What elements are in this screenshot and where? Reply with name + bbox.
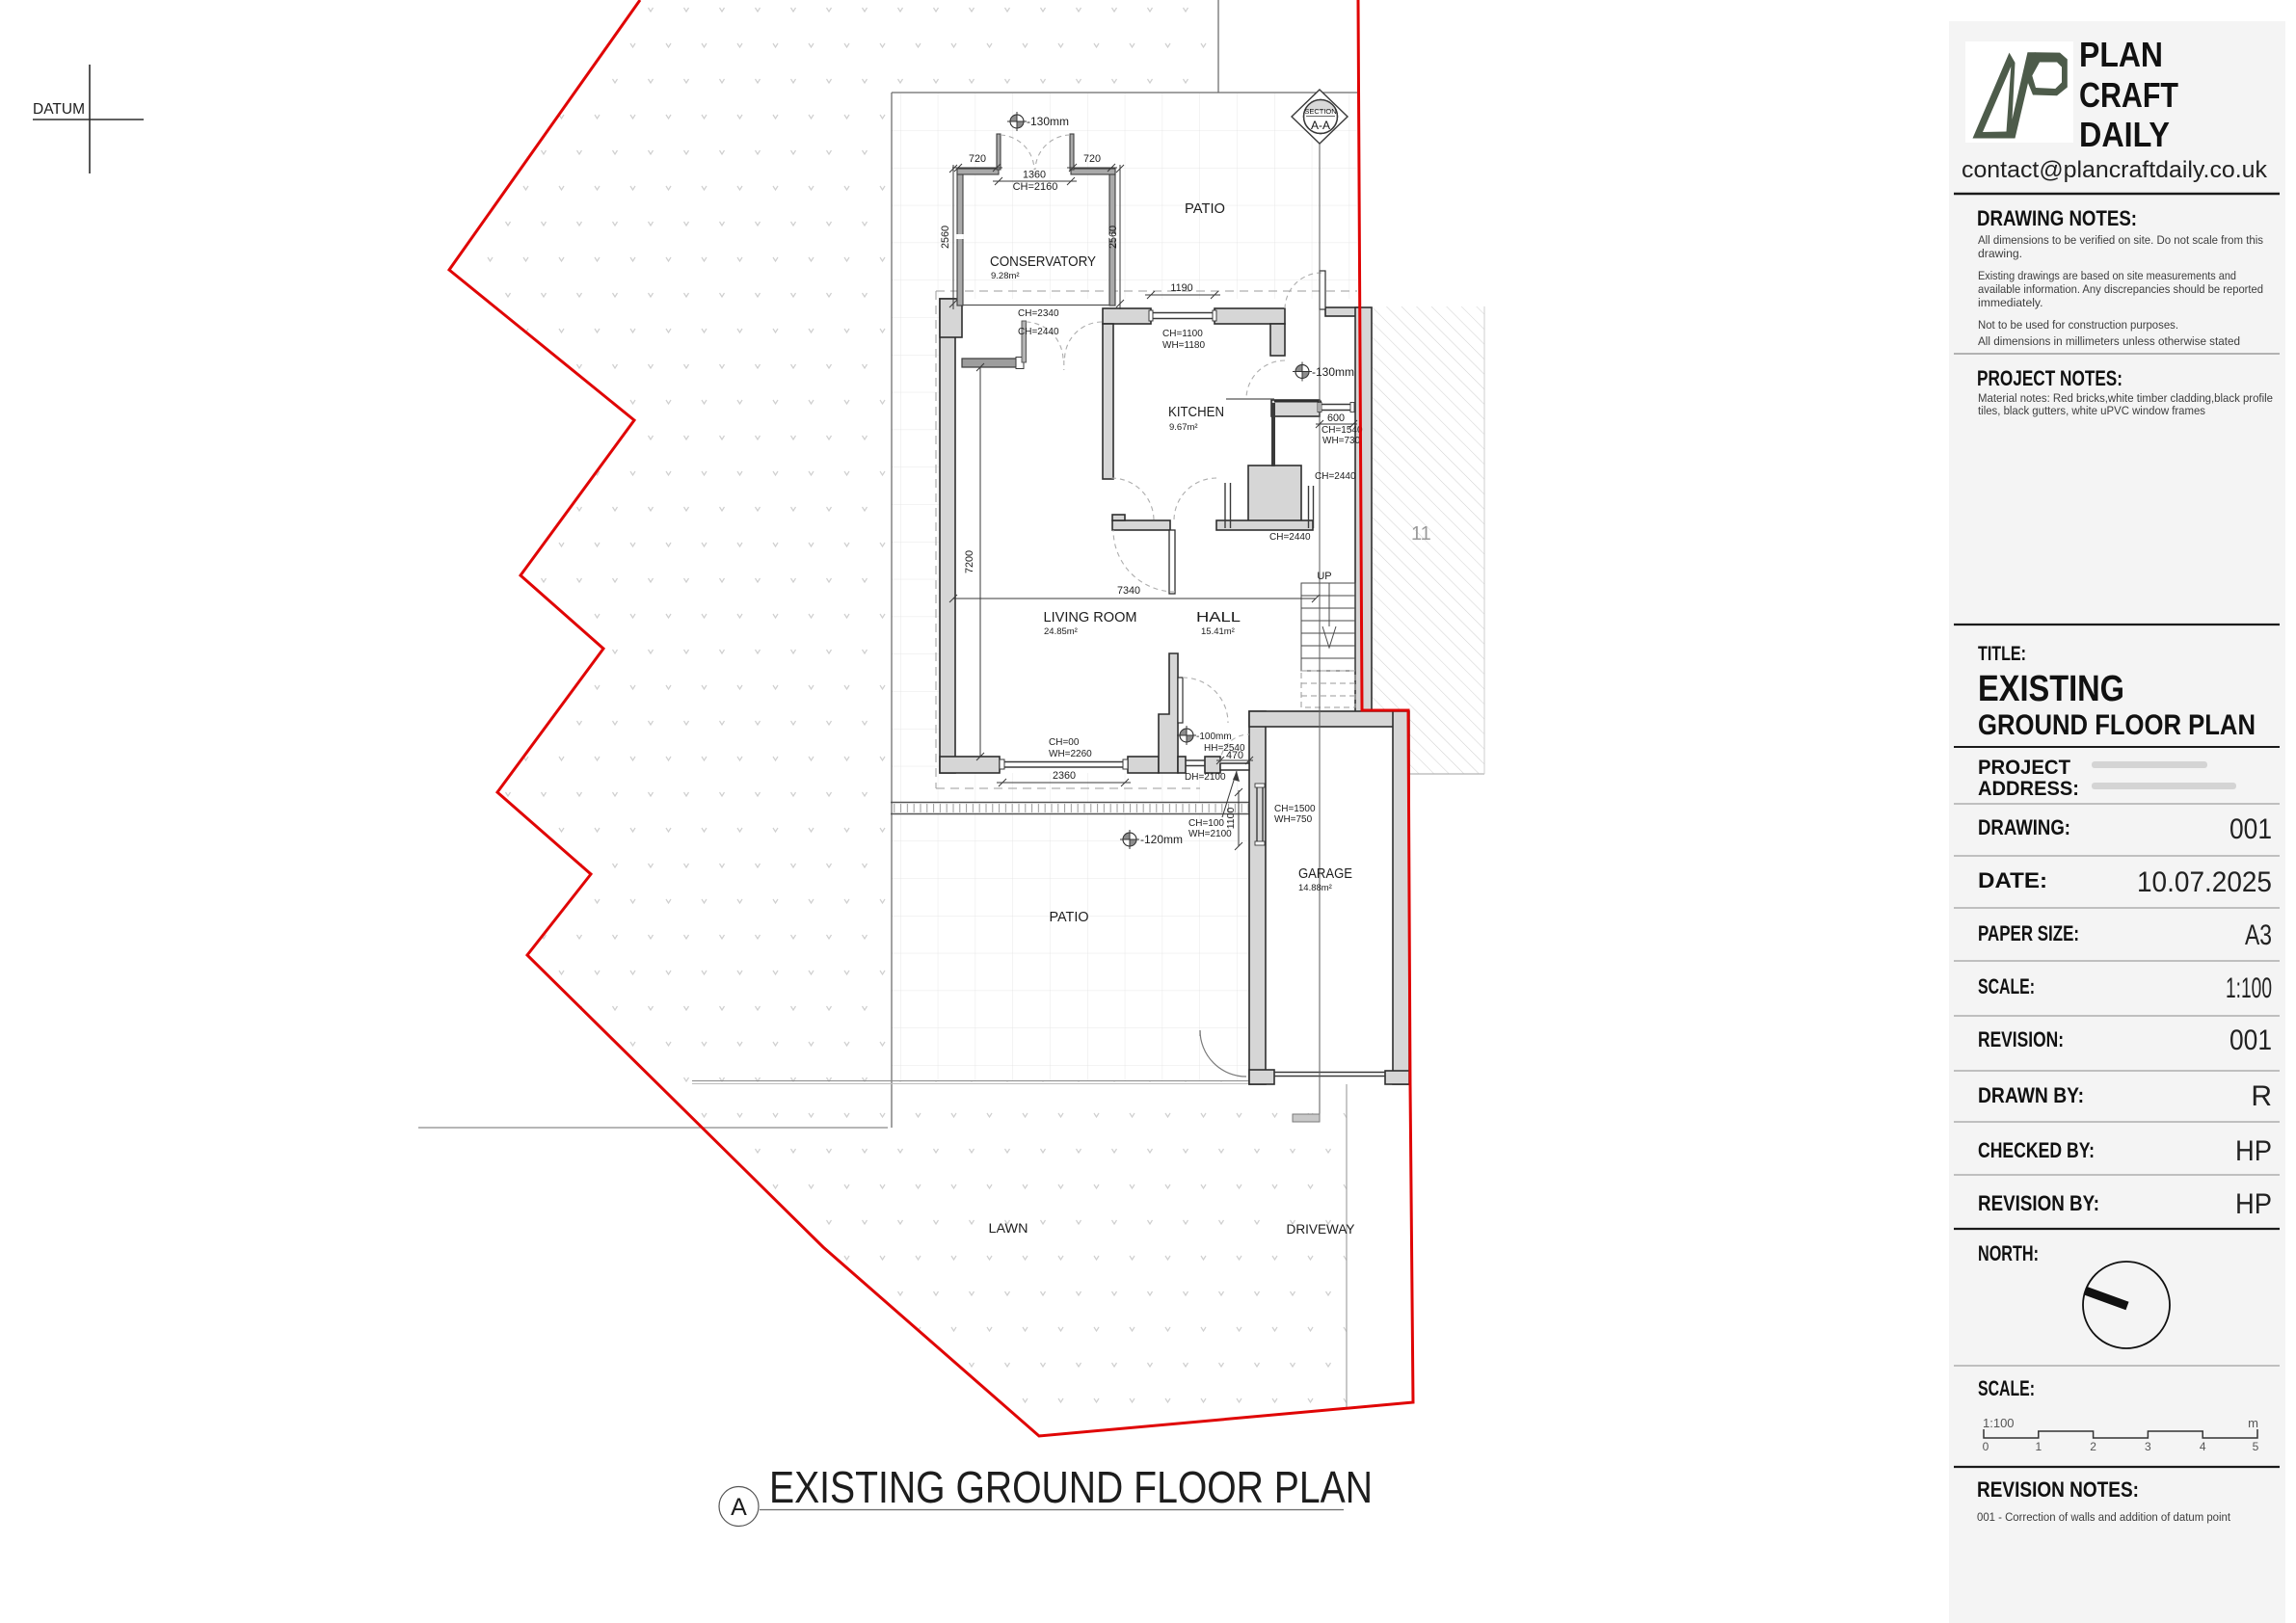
svg-text:DRAWN BY:: DRAWN BY:	[1978, 1083, 2084, 1107]
svg-text:DRAWING:: DRAWING:	[1978, 815, 2070, 839]
svg-text:CH=00: CH=00	[1049, 737, 1080, 748]
svg-text:SCALE:: SCALE:	[1978, 974, 2035, 998]
svg-text:DATUM: DATUM	[33, 101, 85, 118]
svg-text:WH=730: WH=730	[1322, 436, 1361, 446]
svg-text:-120mm: -120mm	[1140, 833, 1183, 846]
svg-text:SECTION: SECTION	[1304, 107, 1336, 116]
svg-text:TITLE:: TITLE:	[1978, 643, 2026, 665]
svg-text:600: 600	[1327, 412, 1345, 424]
svg-text:SCALE:: SCALE:	[1978, 1376, 2035, 1400]
svg-text:CH=2340: CH=2340	[1018, 308, 1059, 319]
svg-text:HP: HP	[2235, 1188, 2272, 1220]
svg-text:DRIVEWAY: DRIVEWAY	[1287, 1221, 1356, 1237]
svg-text:All dimensions to be verified: All dimensions to be verified on site. D…	[1978, 233, 2263, 247]
svg-text:1360: 1360	[1023, 170, 1046, 181]
svg-text:CH=2160: CH=2160	[1013, 181, 1058, 193]
svg-text:PAPER SIZE:: PAPER SIZE:	[1978, 921, 2079, 945]
svg-text:PATIO: PATIO	[1050, 909, 1089, 925]
svg-text:15.41m²: 15.41m²	[1201, 626, 1235, 637]
svg-text:UP: UP	[1317, 571, 1331, 582]
svg-text:14.88m²: 14.88m²	[1298, 883, 1332, 893]
svg-text:-130mm: -130mm	[1027, 115, 1069, 128]
svg-text:CH=1100: CH=1100	[1162, 329, 1203, 339]
svg-text:All dimensions in millimeters: All dimensions in millimeters unless oth…	[1978, 334, 2240, 348]
svg-text:-130mm: -130mm	[1312, 365, 1354, 379]
svg-text:9.67m²: 9.67m²	[1169, 422, 1198, 433]
svg-text:WH=1180: WH=1180	[1162, 340, 1205, 351]
svg-text:EXISTING: EXISTING	[1978, 669, 2124, 709]
svg-text:REVISION NOTES:: REVISION NOTES:	[1977, 1477, 2139, 1502]
svg-text:DH=2100: DH=2100	[1185, 772, 1226, 783]
svg-text:2360: 2360	[1053, 770, 1076, 782]
svg-text:WH=2100: WH=2100	[1188, 829, 1232, 839]
svg-text:EXISTING GROUND FLOOR PLAN: EXISTING GROUND FLOOR PLAN	[769, 1462, 1373, 1512]
svg-text:1190: 1190	[1170, 282, 1192, 294]
svg-text:CRAFT: CRAFT	[2079, 75, 2178, 115]
svg-text:contact@plancraftdaily.co.uk: contact@plancraftdaily.co.uk	[1962, 157, 2268, 183]
svg-text:immediately.: immediately.	[1978, 296, 2043, 309]
svg-text:7340: 7340	[1117, 585, 1140, 597]
svg-text:HALL: HALL	[1196, 609, 1241, 625]
svg-text:PLAN: PLAN	[2079, 35, 2163, 74]
svg-text:5: 5	[2253, 1440, 2259, 1453]
svg-text:2560: 2560	[1108, 226, 1119, 249]
svg-text:10.07.2025: 10.07.2025	[2137, 866, 2272, 898]
svg-text:-100mm: -100mm	[1196, 732, 1232, 742]
svg-text:9.28m²: 9.28m²	[991, 271, 1020, 281]
svg-text:tiles, black gutters, white uP: tiles, black gutters, white uPVC window …	[1978, 404, 2205, 417]
svg-text:A3: A3	[2245, 919, 2272, 951]
svg-text:CH=2440: CH=2440	[1269, 532, 1311, 543]
svg-text:R: R	[2251, 1080, 2272, 1112]
svg-text:m: m	[2248, 1416, 2258, 1430]
svg-text:001: 001	[2229, 813, 2272, 845]
svg-text:0: 0	[1983, 1440, 1989, 1453]
svg-text:Not to be used for constructio: Not to be used for construction purposes…	[1978, 318, 2178, 332]
svg-text:Existing drawings are based on: Existing drawings are based on site meas…	[1978, 269, 2236, 282]
svg-text:CH=2440: CH=2440	[1018, 327, 1059, 337]
svg-text:CH=1540: CH=1540	[1322, 425, 1363, 436]
svg-text:drawing.: drawing.	[1978, 247, 2022, 260]
svg-text:A-A: A-A	[1311, 119, 1330, 132]
svg-text:720: 720	[1083, 153, 1101, 165]
svg-text:DRAWING NOTES:: DRAWING NOTES:	[1977, 206, 2137, 230]
svg-text:2: 2	[2090, 1440, 2096, 1453]
svg-text:PATIO: PATIO	[1185, 200, 1225, 217]
svg-text:GARAGE: GARAGE	[1298, 865, 1352, 882]
svg-text:WH=2260: WH=2260	[1049, 749, 1092, 759]
svg-text:11: 11	[1411, 523, 1431, 545]
svg-text:1: 1	[2035, 1440, 2042, 1453]
svg-text:REVISION:: REVISION:	[1978, 1027, 2064, 1051]
svg-text:7200: 7200	[964, 550, 975, 573]
svg-text:001: 001	[2229, 1024, 2272, 1056]
svg-text:720: 720	[969, 153, 986, 165]
svg-text:HP: HP	[2235, 1135, 2272, 1167]
svg-text:4: 4	[2200, 1440, 2206, 1453]
svg-text:LAWN: LAWN	[989, 1220, 1028, 1236]
svg-text:CHECKED BY:: CHECKED BY:	[1978, 1138, 2095, 1162]
svg-text:KITCHEN: KITCHEN	[1168, 404, 1224, 420]
svg-text:available information. Any dis: available information. Any discrepancies…	[1978, 282, 2263, 296]
svg-text:1:100: 1:100	[1983, 1416, 2015, 1430]
svg-text:DATE:: DATE:	[1978, 868, 2047, 892]
svg-text:PROJECT NOTES:: PROJECT NOTES:	[1977, 366, 2122, 390]
svg-text:24.85m²: 24.85m²	[1044, 626, 1078, 637]
svg-text:PROJECT: PROJECT	[1978, 757, 2070, 779]
svg-text:CH=100: CH=100	[1188, 818, 1224, 829]
svg-text:CONSERVATORY: CONSERVATORY	[990, 253, 1096, 270]
svg-text:A: A	[731, 1494, 747, 1521]
svg-text:DAILY: DAILY	[2079, 115, 2170, 154]
svg-text:3: 3	[2145, 1440, 2151, 1453]
svg-text:ADDRESS:: ADDRESS:	[1978, 778, 2079, 800]
svg-text:1100: 1100	[1225, 808, 1237, 830]
svg-text:REVISION BY:: REVISION BY:	[1978, 1191, 2099, 1215]
svg-text:GROUND FLOOR PLAN: GROUND FLOOR PLAN	[1978, 709, 2256, 741]
svg-text:NORTH:: NORTH:	[1978, 1241, 2039, 1265]
svg-text:1:100: 1:100	[2226, 972, 2272, 1004]
svg-text:CH=1500: CH=1500	[1274, 804, 1316, 814]
svg-text:WH=750: WH=750	[1274, 814, 1313, 825]
svg-text:001 - Correction of walls and: 001 - Correction of walls and addition o…	[1977, 1510, 2231, 1524]
svg-text:LIVING ROOM: LIVING ROOM	[1044, 609, 1137, 625]
svg-text:HH=2540: HH=2540	[1204, 743, 1245, 754]
svg-text:Material notes: Red bricks,whi: Material notes: Red bricks,white timber …	[1978, 391, 2273, 405]
svg-text:2560: 2560	[940, 226, 951, 249]
svg-text:CH=2440: CH=2440	[1315, 471, 1356, 482]
